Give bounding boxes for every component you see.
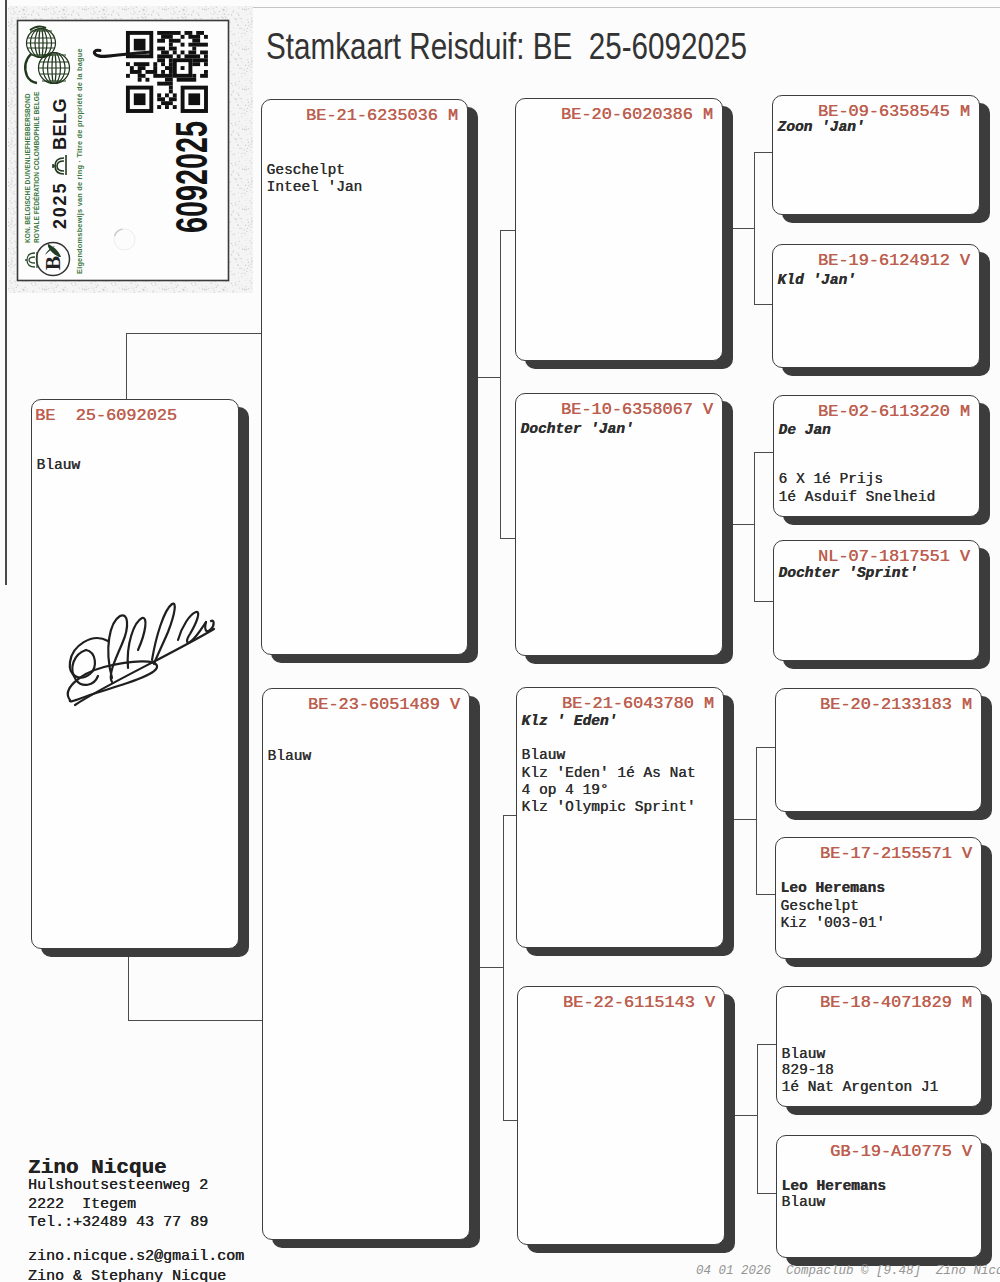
svg-text:6092025: 6092025 — [167, 121, 217, 233]
svg-text:ROYALE FÉDÉRATION COLOMBOPHILE: ROYALE FÉDÉRATION COLOMBOPHILE BELGE — [32, 91, 40, 243]
svg-text:2025: 2025 — [50, 182, 70, 229]
svg-text:B: B — [41, 256, 65, 270]
svg-text:BELG: BELG — [50, 98, 70, 150]
svg-text:KON. BELGISCHE DUIVENLIEFHEBBE: KON. BELGISCHE DUIVENLIEFHEBBERSBOND — [24, 93, 31, 243]
svg-text:Eigendomsbewijs van de ring ·: Eigendomsbewijs van de ring · Titre de p… — [75, 48, 84, 274]
